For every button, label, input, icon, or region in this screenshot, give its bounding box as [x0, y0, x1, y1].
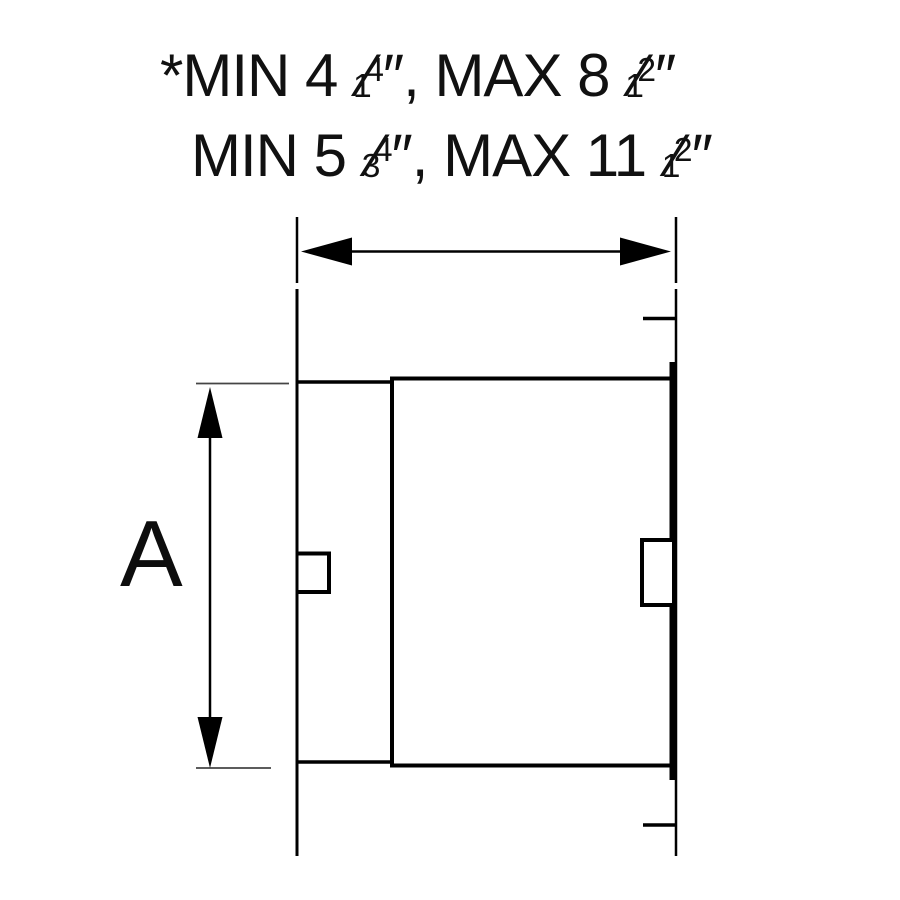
dim-a-label: A [120, 501, 183, 606]
left-tab-fill [299, 556, 327, 591]
width-dimension-arrowhead-right [620, 238, 671, 266]
right-tab-fill [644, 542, 672, 603]
sleeve-section-drawing: A [0, 0, 900, 900]
technical-drawing-page: *MIN 4 1⁄4″, MAX 8 1⁄2″ MIN 5 3⁄4″, MAX … [0, 0, 900, 900]
dim-a-arrowhead-top [198, 387, 223, 438]
width-dimension-arrowhead-left [301, 238, 352, 266]
dim-a-arrowhead-bottom [198, 717, 223, 768]
